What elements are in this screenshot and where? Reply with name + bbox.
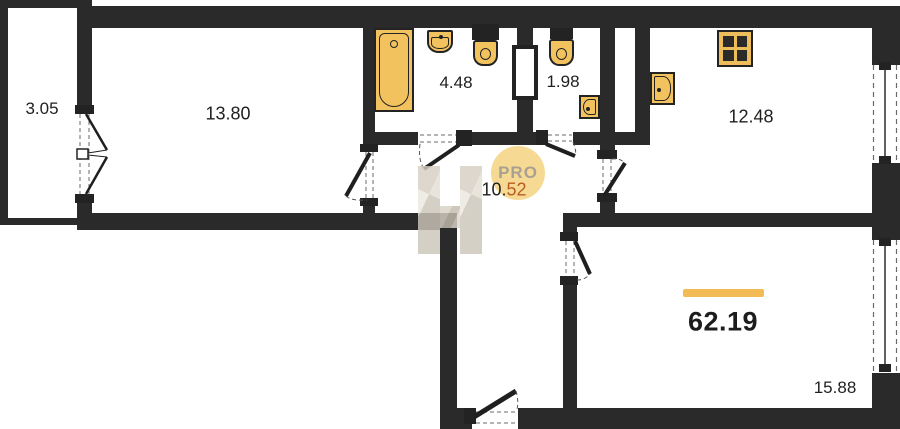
developer-logo-watermark	[418, 166, 482, 254]
entrance-door-swing	[464, 391, 518, 424]
living-door-swing	[346, 144, 378, 206]
kitchen-door-swing	[597, 150, 625, 202]
kitchen-window	[874, 62, 897, 164]
wc-area-label: 1.98	[546, 72, 579, 92]
total-area-label: 62.19	[688, 307, 758, 338]
kitchen-area-label: 12.48	[728, 107, 773, 128]
bedroom-window	[874, 238, 897, 373]
total-area-accent-bar	[683, 289, 764, 297]
floor-plan: PRO 3.05 13.80 4.48 1.98 12.48 10.52 15.…	[0, 0, 900, 429]
wc-door-swing	[536, 130, 576, 156]
bedroom-door-swing	[560, 232, 590, 285]
hall-area-label: 10.52	[481, 180, 526, 201]
balcony-window	[75, 105, 107, 203]
bathroom-area-label: 4.48	[439, 73, 472, 93]
living-area-label: 13.80	[205, 104, 250, 125]
bedroom-area-label: 15.88	[814, 378, 857, 398]
hall-area-frac: 52	[507, 180, 527, 200]
balcony-area-label: 3.05	[25, 99, 58, 119]
bathroom-door-swing	[420, 130, 473, 169]
hall-area-int: 10.	[481, 180, 506, 200]
